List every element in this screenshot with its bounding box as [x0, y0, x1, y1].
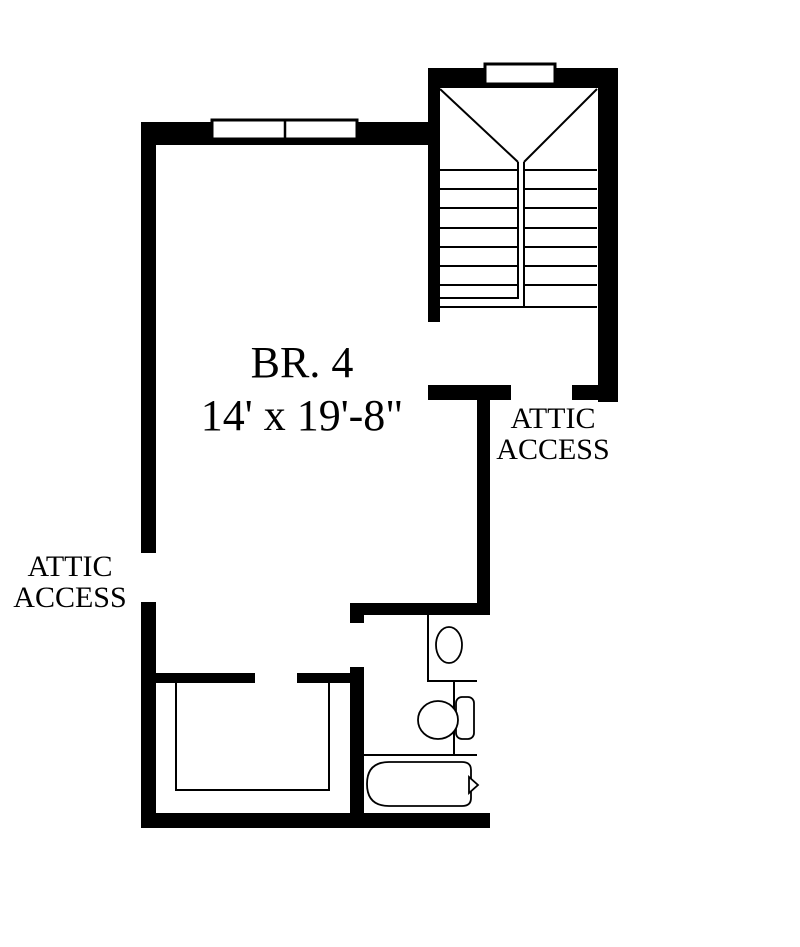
attic-access-label-right: ATTIC ACCESS [490, 403, 616, 465]
room-name: BR. 4 [170, 340, 434, 386]
floor-plan-drawing [0, 0, 800, 947]
stair-treads-right [525, 170, 597, 285]
right-wall [598, 68, 618, 402]
closet-rod-outline [176, 683, 329, 790]
bathtub [367, 762, 471, 806]
attic-access-label-left: ATTIC ACCESS [7, 551, 133, 613]
stair-treads-left [440, 170, 517, 285]
stair-center-rail-left [440, 162, 518, 298]
toilet-bowl [418, 701, 458, 739]
sink-basin [436, 627, 462, 663]
room-label: BR. 4 14' x 19'-8" [170, 340, 434, 439]
closet-bath-shared-wall [350, 667, 364, 813]
staircase [440, 89, 597, 307]
closet-front-wall-right [297, 673, 352, 683]
bottom-wall [141, 813, 490, 828]
bathroom-top-wall [350, 603, 490, 615]
stair-window [485, 64, 555, 84]
floor-plan: BR. 4 14' x 19'-8" ATTIC ACCESS ATTIC AC… [0, 0, 800, 947]
closet-front-wall-left [152, 673, 255, 683]
left-wall-upper [141, 122, 156, 553]
stair-diagonal-left [440, 89, 518, 162]
hall-partition-wall [477, 385, 490, 615]
left-wall-lower [141, 602, 156, 828]
stair-left-wall [428, 68, 440, 322]
stair-diagonal-right [524, 89, 597, 162]
bathroom [364, 615, 478, 806]
stair-bottom-wall-left [428, 385, 511, 400]
tub-spout-marker [469, 777, 478, 793]
room-dimensions: 14' x 19'-8" [170, 393, 434, 439]
